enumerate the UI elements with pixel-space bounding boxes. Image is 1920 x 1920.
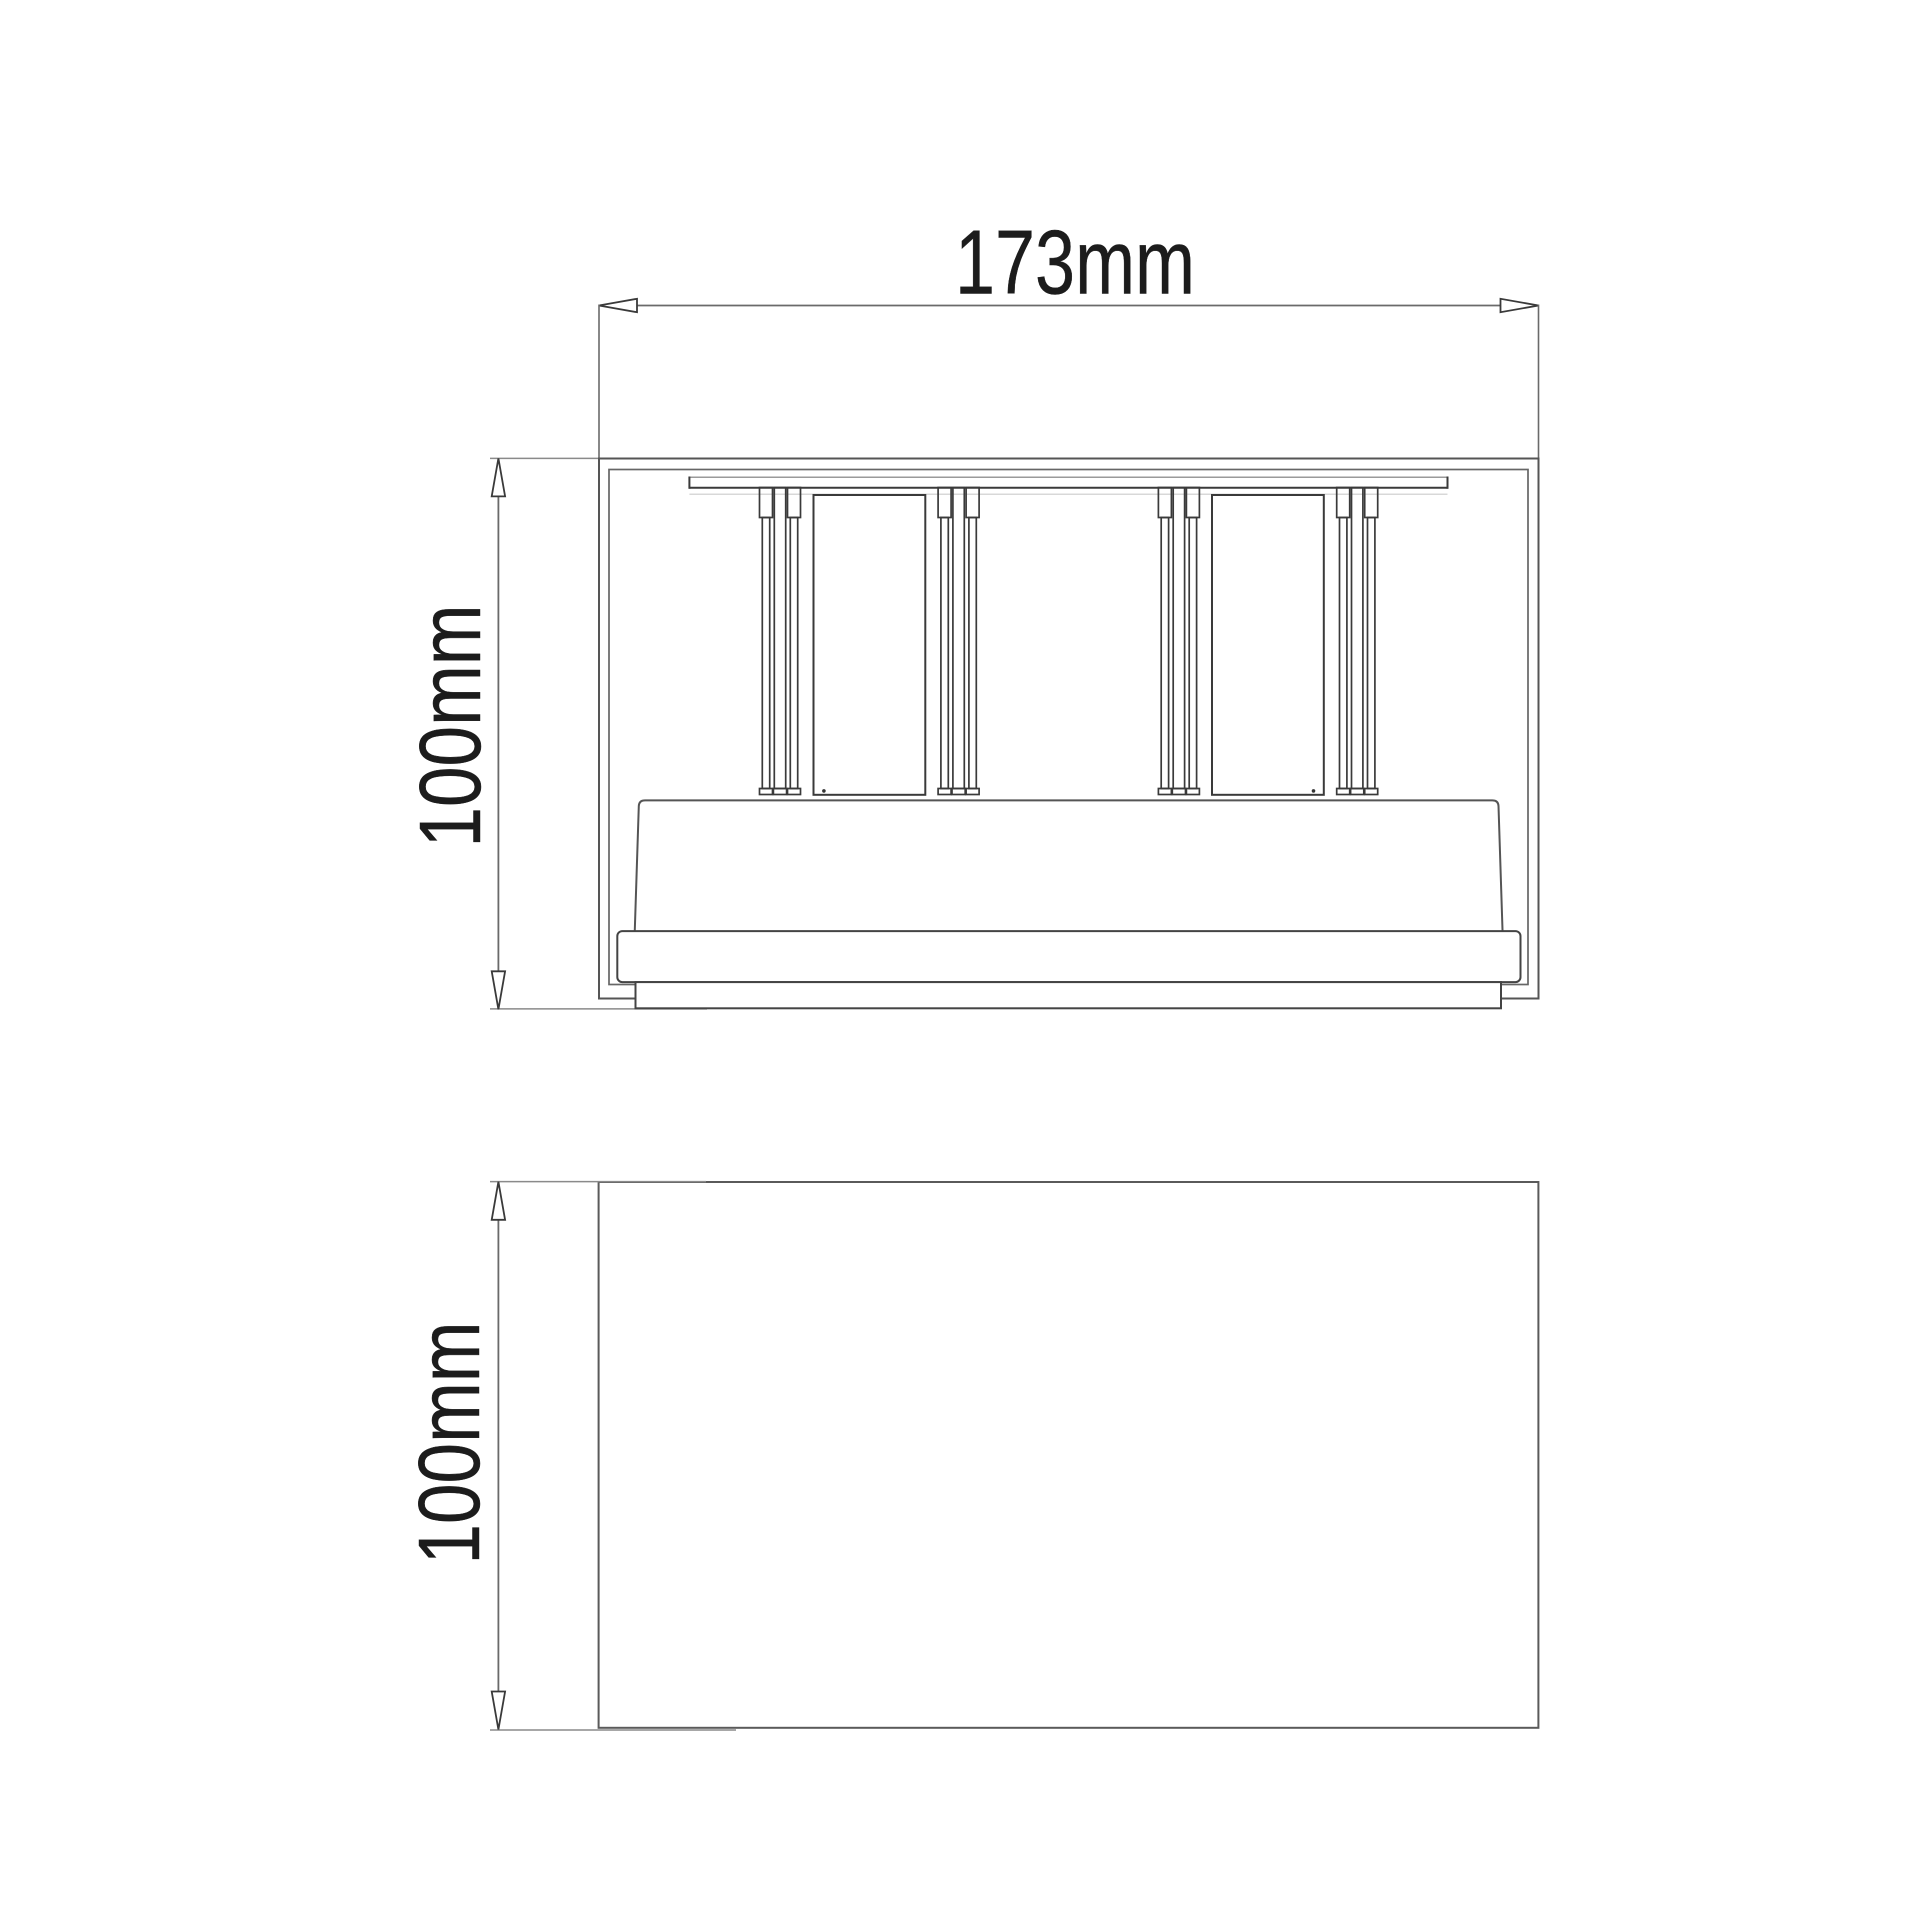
svg-text:173mm: 173mm — [955, 213, 1195, 314]
svg-text:100mm: 100mm — [401, 1322, 498, 1565]
svg-text:100mm: 100mm — [402, 605, 499, 848]
